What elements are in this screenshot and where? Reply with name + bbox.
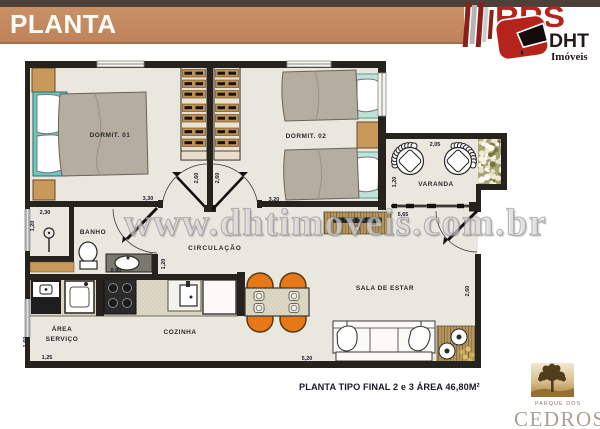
svg-text:BANHO: BANHO (80, 229, 106, 236)
svg-text:2,60: 2,60 (465, 286, 471, 297)
svg-text:2,05: 2,05 (430, 142, 441, 148)
svg-text:DORMIT. 01: DORMIT. 01 (90, 132, 131, 139)
svg-text:DORMIT. 02: DORMIT. 02 (286, 133, 327, 140)
svg-text:0,90: 0,90 (111, 268, 122, 274)
svg-text:1,20: 1,20 (392, 177, 398, 188)
svg-text:SERVIÇO: SERVIÇO (46, 336, 79, 343)
svg-text:1,20: 1,20 (30, 221, 36, 232)
svg-text:VARANDA: VARANDA (418, 181, 454, 188)
svg-text:1,60: 1,60 (23, 337, 29, 348)
svg-text:COZINHA: COZINHA (163, 329, 196, 336)
svg-text:5,20: 5,20 (302, 356, 313, 362)
svg-text:2,30: 2,30 (40, 210, 51, 216)
svg-text:1,20: 1,20 (161, 259, 167, 270)
svg-text:2,60: 2,60 (194, 173, 200, 184)
svg-text:2,60: 2,60 (215, 173, 221, 184)
svg-text:ÁREA: ÁREA (52, 324, 72, 333)
svg-text:SALA DE ESTAR: SALA DE ESTAR (356, 285, 414, 292)
svg-text:1,25: 1,25 (42, 355, 53, 361)
